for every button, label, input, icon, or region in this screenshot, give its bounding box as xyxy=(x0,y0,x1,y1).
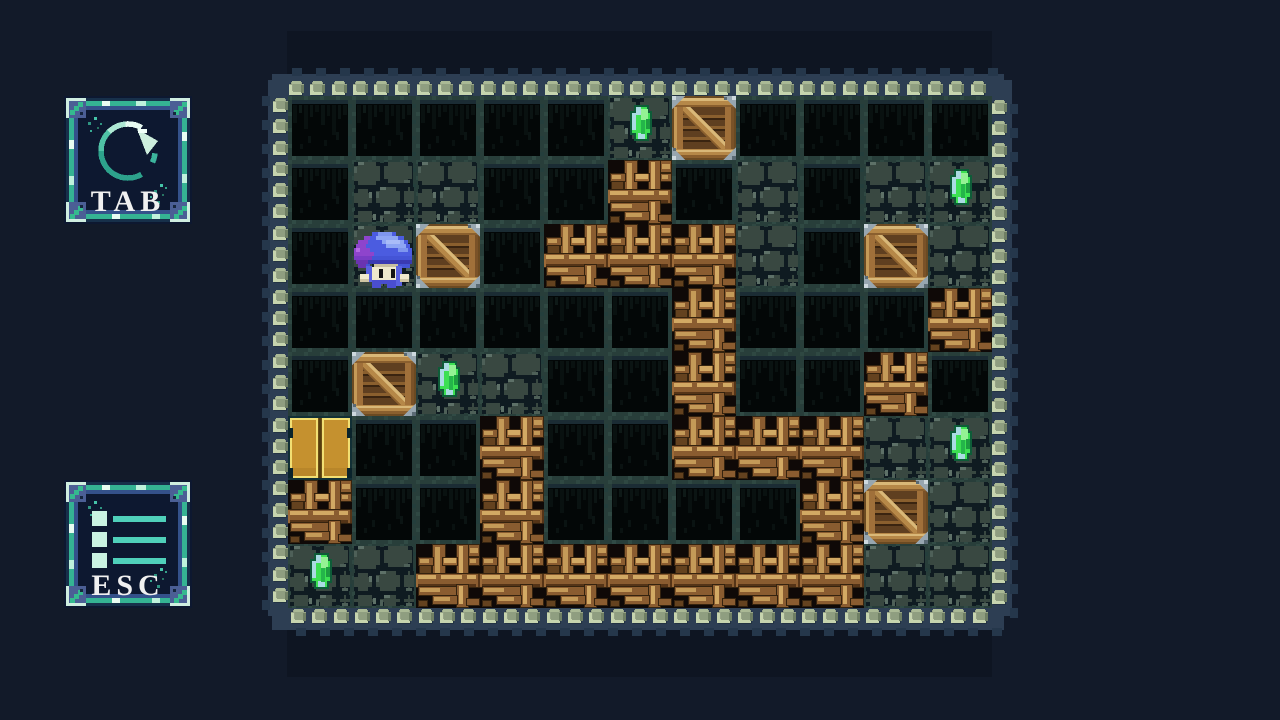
svg-text:TAB: TAB xyxy=(91,185,165,218)
svg-text:ESC: ESC xyxy=(91,569,164,602)
